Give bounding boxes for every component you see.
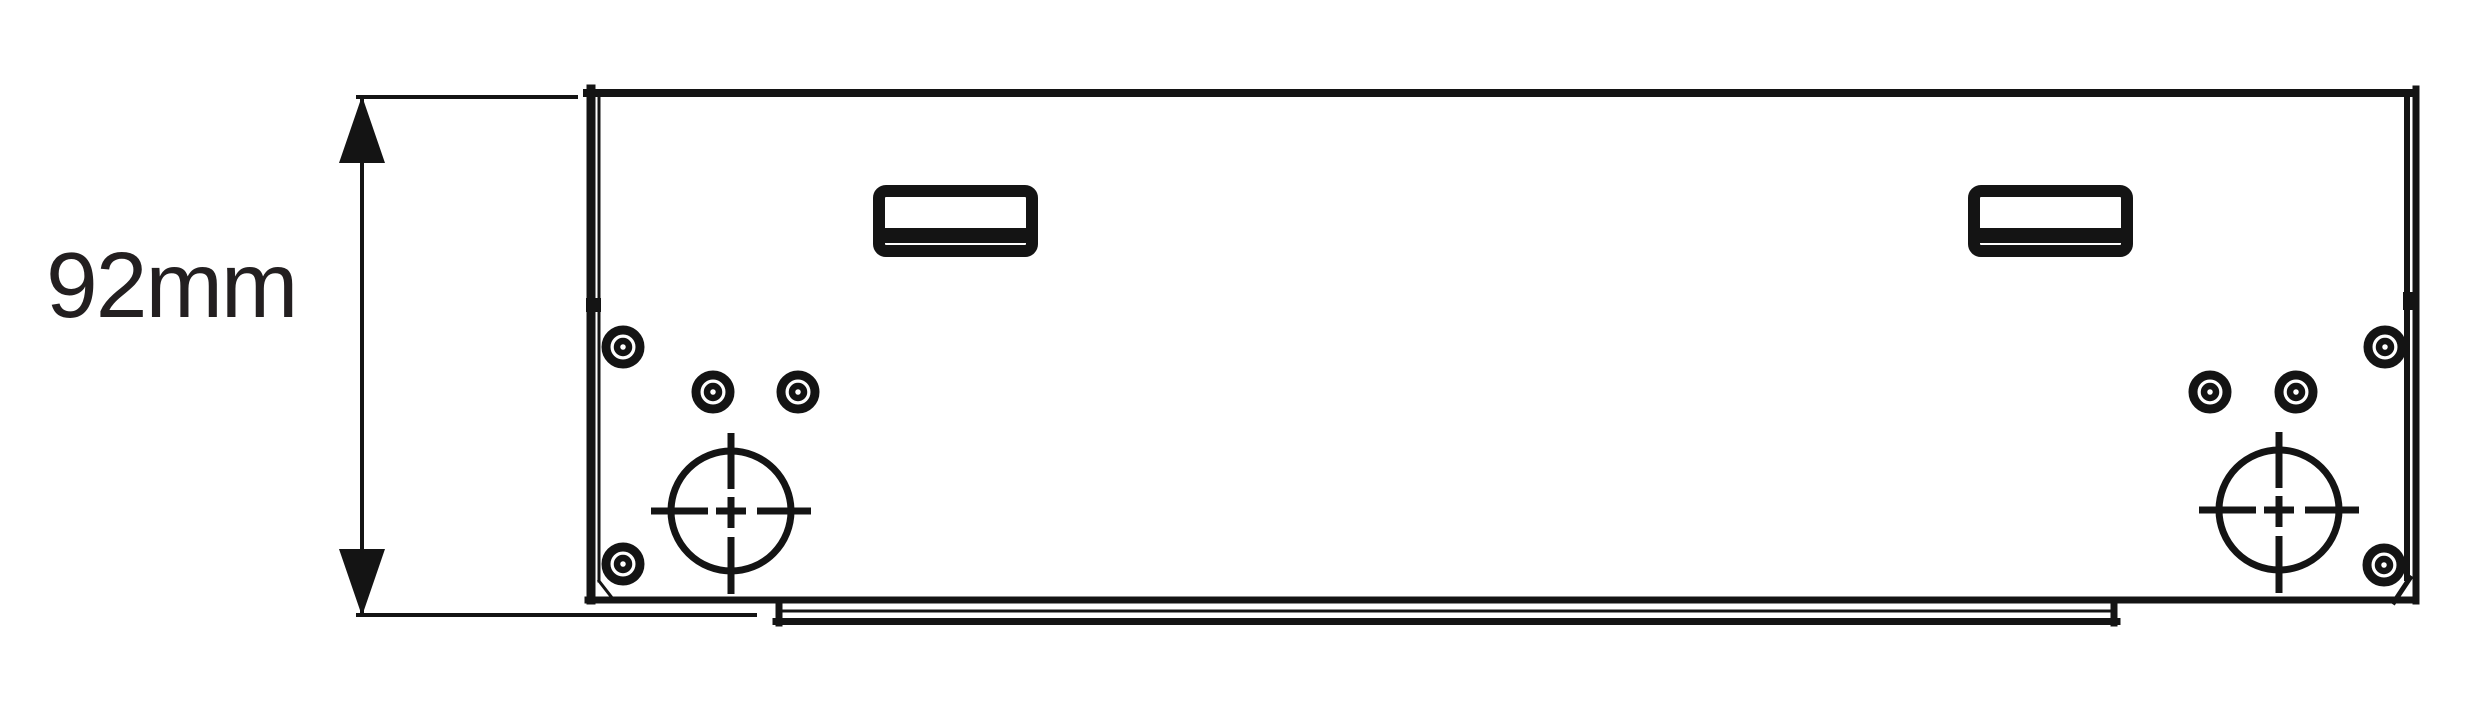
bottom-lip — [776, 602, 2117, 623]
screw-hole-right-pair-a — [2193, 375, 2227, 409]
panel-outline — [586, 89, 2417, 602]
screw-hole-left-pair-a — [696, 375, 730, 409]
latch-slot-left — [879, 191, 1032, 251]
height-dimension: 92mm — [46, 96, 757, 616]
screw-hole-left-edge-top — [606, 330, 640, 364]
screw-hole-left-pair-b — [781, 375, 815, 409]
panel-rear-view-drawing: 92mm — [0, 0, 2468, 714]
center-mark-icon — [2199, 432, 2359, 593]
screw-holes — [606, 330, 2402, 582]
knockout-left — [651, 433, 811, 594]
panel-right-seam-tick — [2403, 292, 2417, 310]
screw-hole-right-pair-b — [2279, 375, 2313, 409]
panel-left-bottom-chamfer — [599, 581, 613, 599]
latch-slot-bar — [883, 228, 1028, 243]
arrowhead-down-icon — [339, 549, 385, 616]
panel-left-seam-tick — [586, 298, 601, 312]
screw-hole-right-edge-top — [2368, 330, 2402, 364]
dimension-label: 92mm — [46, 233, 296, 337]
latch-slot-right — [1974, 191, 2127, 251]
center-mark-icon — [651, 433, 811, 594]
latch-slot-bar — [1978, 228, 2123, 243]
knockout-right — [2199, 432, 2359, 593]
drawing-canvas: 92mm — [0, 0, 2468, 714]
screw-hole-right-edge-bottom — [2367, 548, 2401, 582]
screw-hole-left-edge-bottom — [606, 547, 640, 581]
arrowhead-up-icon — [339, 96, 385, 163]
